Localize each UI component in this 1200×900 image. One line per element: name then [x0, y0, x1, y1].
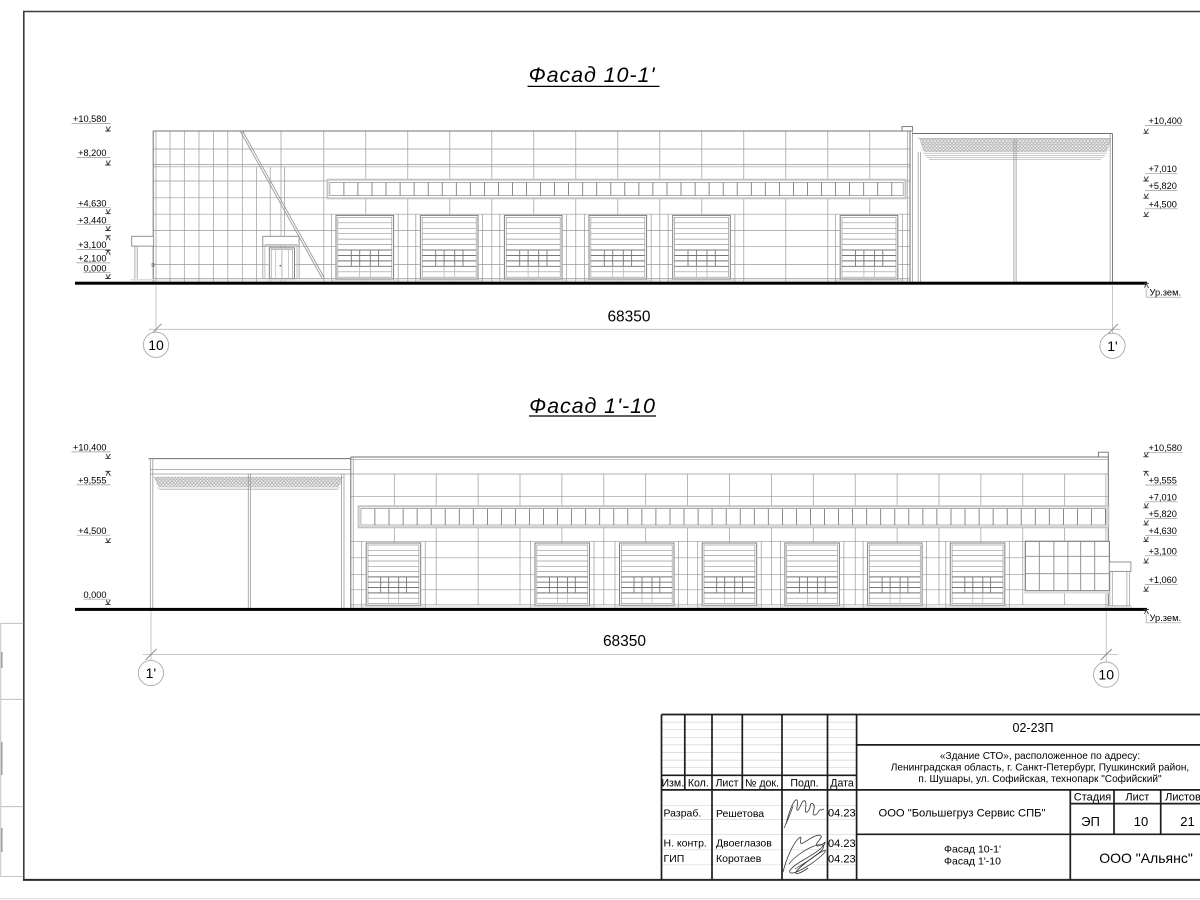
svg-text:Дата: Дата — [830, 778, 854, 790]
svg-text:Ур.зем.: Ур.зем. — [1150, 613, 1182, 623]
svg-text:+4,500: +4,500 — [78, 526, 106, 536]
svg-text:+9,555: +9,555 — [78, 476, 106, 486]
svg-text:+2,100: +2,100 — [78, 254, 106, 264]
svg-text:+10,580: +10,580 — [1149, 443, 1182, 453]
svg-text:+4,630: +4,630 — [1149, 526, 1177, 536]
svg-text:ООО "Альянс": ООО "Альянс" — [1099, 850, 1193, 866]
svg-text:+4,630: +4,630 — [78, 198, 106, 208]
svg-text:+10,400: +10,400 — [1149, 116, 1182, 126]
svg-text:Решетова: Решетова — [716, 808, 764, 820]
svg-text:68350: 68350 — [607, 309, 650, 326]
svg-text:+1,060: +1,060 — [1149, 575, 1177, 585]
svg-text:+3,440: +3,440 — [78, 215, 106, 225]
svg-text:п. Шушары, ул. Софийская, техн: п. Шушары, ул. Софийская, технопарк "Соф… — [918, 773, 1162, 785]
svg-text:+3,100: +3,100 — [78, 240, 106, 250]
svg-text:+5,820: +5,820 — [1149, 509, 1177, 519]
svg-text:1': 1' — [146, 665, 156, 681]
svg-text:Подп.: Подп. — [790, 778, 818, 790]
svg-text:04.23: 04.23 — [828, 808, 856, 820]
svg-text:Листов: Листов — [1165, 792, 1200, 804]
svg-text:Стадия: Стадия — [1074, 792, 1112, 804]
svg-text:№ док.: № док. — [745, 778, 779, 790]
svg-text:0,000: 0,000 — [84, 590, 107, 600]
svg-text:+7,010: +7,010 — [1149, 492, 1177, 502]
svg-text:10: 10 — [1098, 667, 1114, 683]
svg-text:Н. контр.: Н. контр. — [664, 837, 707, 849]
svg-text:Кол.: Кол. — [688, 778, 709, 790]
svg-text:Коротаев: Коротаев — [716, 853, 762, 865]
svg-text:68350: 68350 — [603, 633, 646, 650]
svg-text:ЭП: ЭП — [1081, 814, 1100, 829]
svg-text:+9,555: +9,555 — [1149, 476, 1177, 486]
svg-text:10: 10 — [148, 337, 164, 353]
svg-text:Ленинградская область, г. Санк: Ленинградская область, г. Санкт-Петербур… — [891, 762, 1189, 774]
svg-text:ГИП: ГИП — [664, 853, 685, 865]
svg-text:ООО "Большегруз Сервис СПБ": ООО "Большегруз Сервис СПБ" — [879, 808, 1046, 820]
svg-text:04.23: 04.23 — [828, 853, 856, 865]
svg-text:+4,500: +4,500 — [1149, 199, 1177, 209]
svg-text:Изм.: Изм. — [661, 778, 684, 790]
svg-text:02-23П: 02-23П — [1013, 721, 1054, 735]
svg-text:+10,580: +10,580 — [73, 114, 106, 124]
svg-text:04.23: 04.23 — [828, 838, 856, 850]
svg-text:+10,400: +10,400 — [73, 443, 106, 453]
svg-text:Разраб.: Разраб. — [664, 807, 702, 819]
svg-text:«Здание СТО», расположенное по: «Здание СТО», расположенное по адресу: — [940, 751, 1140, 762]
svg-text:+5,820: +5,820 — [1149, 181, 1177, 191]
svg-text:21: 21 — [1180, 814, 1194, 829]
svg-text:10: 10 — [1134, 814, 1148, 829]
svg-text:Фасад 10-1': Фасад 10-1' — [529, 63, 656, 87]
svg-text:Лист: Лист — [1125, 792, 1149, 804]
svg-text:+7,010: +7,010 — [1149, 164, 1177, 174]
svg-text:0,000: 0,000 — [84, 263, 107, 273]
svg-text:1': 1' — [1107, 338, 1117, 354]
svg-text:Двоеглазов: Двоеглазов — [716, 837, 772, 849]
svg-text:Фасад 1'-10: Фасад 1'-10 — [529, 394, 656, 418]
svg-text:Лист: Лист — [715, 778, 738, 790]
svg-text:+8,200: +8,200 — [78, 148, 106, 158]
svg-text:+3,100: +3,100 — [1149, 546, 1177, 556]
svg-text:Фасад 1'-10: Фасад 1'-10 — [944, 855, 1001, 867]
svg-text:Фасад 10-1': Фасад 10-1' — [944, 843, 1001, 855]
svg-text:Ур.зем.: Ур.зем. — [1150, 287, 1182, 297]
